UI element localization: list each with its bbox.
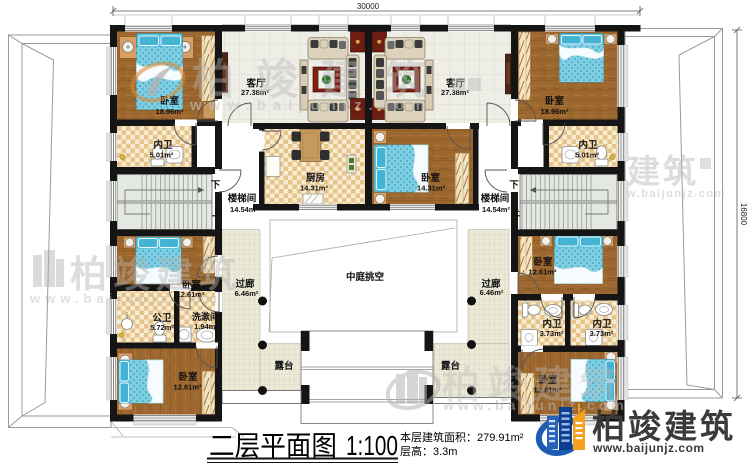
svg-text:1:100: 1:100: [346, 430, 398, 461]
svg-text:18.96m²: 18.96m²: [541, 107, 569, 116]
svg-text:本层建筑面积：279.91m²: 本层建筑面积：279.91m²: [400, 430, 524, 444]
svg-text:16800: 16800: [739, 203, 748, 226]
svg-text:12.61m²: 12.61m²: [529, 268, 557, 277]
svg-text:6.46m²: 6.46m²: [480, 288, 504, 297]
svg-text:1.94m²: 1.94m²: [194, 322, 218, 331]
svg-text:卧室: 卧室: [421, 172, 441, 184]
svg-text:洗漱间: 洗漱间: [192, 311, 219, 322]
svg-text:上: 上: [212, 207, 222, 219]
svg-text:柏竣建筑: 柏竣建筑: [592, 408, 736, 445]
svg-text:下: 下: [211, 180, 221, 191]
svg-text:30000: 30000: [357, 2, 380, 11]
svg-text:3.73m²: 3.73m²: [590, 329, 614, 338]
svg-text:5.01m²: 5.01m²: [150, 151, 174, 160]
svg-text:卧室: 卧室: [178, 371, 198, 383]
svg-text:14.31m²: 14.31m²: [417, 184, 445, 193]
svg-text:14.54m²: 14.54m²: [482, 205, 510, 214]
svg-text:18.96m²: 18.96m²: [156, 107, 184, 116]
svg-text:内卫: 内卫: [153, 139, 173, 151]
svg-text:www.baijunjz.com: www.baijunjz.com: [592, 441, 705, 455]
svg-text:楼梯间: 楼梯间: [481, 193, 510, 205]
svg-text:14.31m²: 14.31m²: [300, 184, 328, 193]
svg-text:楼梯间: 楼梯间: [228, 193, 257, 205]
svg-text:上: 上: [511, 207, 521, 219]
svg-text:卧室: 卧室: [545, 95, 565, 107]
svg-text:14.54m²: 14.54m²: [230, 205, 258, 214]
svg-text:厨房: 厨房: [306, 172, 325, 184]
svg-text:下: 下: [509, 180, 519, 191]
svg-text:5.01m²: 5.01m²: [575, 151, 599, 160]
svg-text:www.baijunjz.com: www.baijunjz.com: [189, 97, 431, 114]
svg-text:12.61m²: 12.61m²: [174, 383, 202, 392]
svg-text:内卫: 内卫: [578, 139, 598, 151]
svg-text:柏竣建筑: 柏竣建筑: [70, 253, 242, 295]
svg-text:w.baijunjz.com: w.baijunjz.com: [626, 188, 726, 200]
svg-text:5.72m²: 5.72m²: [150, 323, 174, 332]
svg-text:3.73m²: 3.73m²: [540, 329, 564, 338]
svg-text:中庭挑空: 中庭挑空: [346, 271, 385, 283]
svg-text:二层平面图: 二层平面图: [209, 430, 337, 461]
svg-text:柏竣建筑: 柏竣建筑: [192, 56, 448, 103]
svg-text:建筑: 建筑: [627, 153, 699, 190]
svg-text:层高：3.3m: 层高：3.3m: [400, 444, 457, 458]
svg-text:www.baijunjz.com: www.baijunjz.com: [29, 291, 222, 306]
svg-text:卧室: 卧室: [533, 256, 553, 268]
svg-text:露台: 露台: [274, 360, 294, 372]
